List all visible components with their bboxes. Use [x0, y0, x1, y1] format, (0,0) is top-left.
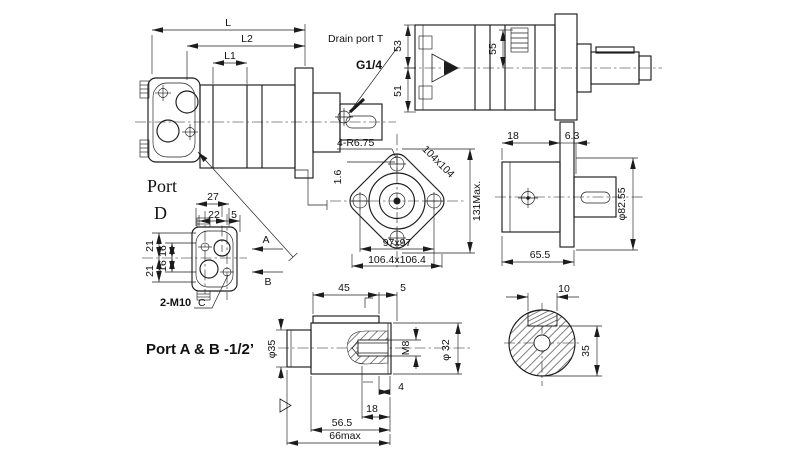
dim-L1: L1 [224, 50, 236, 62]
surface-finish-symbol [280, 399, 291, 412]
hydraulic-motor-drawing: L L2 L1 Drain port T G1/4 [0, 0, 800, 450]
port-top-dimensions: 27 22 5 [196, 191, 240, 232]
bolt-note-text: 2-M10 [160, 297, 191, 309]
bolt-note: 2-M10 C [160, 275, 228, 309]
dim-21-lower: 21 [144, 265, 156, 277]
dim-10: 10 [558, 283, 570, 295]
dim-L: L [225, 17, 231, 29]
port-stub-marks [197, 218, 210, 300]
dim-dia-82-55: φ82.55 [616, 187, 628, 220]
dim-53: 53 [392, 40, 404, 52]
shaft-key-section: 10 35 [504, 283, 602, 386]
flange-front-view: 4-R6.75 1.6 104x104 131Max. 97x97 106.4x… [330, 134, 483, 268]
dim-6-3: 6.3 [565, 130, 580, 142]
dim-65-5: 65.5 [530, 249, 551, 261]
dim-16-lower: 16 [157, 260, 169, 272]
dim-dia35: φ35 [266, 340, 278, 359]
flow-arrows: A B [252, 234, 283, 288]
dim-66max: 66max [329, 430, 361, 442]
thread-section [347, 331, 388, 364]
flow-a-label: A [262, 234, 269, 246]
square-inner-dim: 97x97 [383, 237, 412, 249]
dim-5: 5 [231, 209, 237, 221]
m10-holes [198, 243, 234, 276]
dim-27: 27 [207, 191, 219, 203]
dim-m8: M8 [400, 341, 412, 356]
corner-radius-note: 4-R6.75 [337, 137, 375, 149]
port-title-word: Port [147, 176, 177, 196]
drain-thread-label: G1/4 [356, 58, 382, 72]
drain-port-label: Drain port T [328, 33, 384, 45]
dim-21-upper: 21 [144, 240, 156, 252]
bolt-note-ref: C [198, 297, 206, 309]
dim-4: 4 [398, 381, 404, 393]
port-size-note: Port A & B -1/2’ [146, 341, 254, 358]
output-shaft-detail: 45 5 φ35 M8 φ 32 4 18 [266, 282, 470, 445]
port-d-view: Port D 27 22 5 [142, 176, 283, 309]
end-bolt-mark [518, 188, 538, 208]
flange-dimensions: 4-R6.75 1.6 104x104 131Max. 97x97 106.4x… [332, 137, 483, 268]
dim-18: 18 [507, 130, 519, 142]
drain-plug [511, 28, 528, 52]
length-dimensions: L L2 L1 [152, 17, 305, 84]
roughness-value: 1.6 [332, 170, 344, 185]
dim-dia32: φ 32 [440, 339, 452, 361]
dim-55: 55 [487, 43, 499, 55]
motor-top-view: 53 51 55 [392, 14, 662, 120]
dim-51: 51 [392, 85, 404, 97]
port-title-letter: D [154, 203, 167, 223]
port-left-dimensions: 21 21 16 16 [144, 233, 196, 282]
dim-16-upper: 16 [157, 245, 169, 257]
square-outer-dim: 106.4x106.4 [368, 254, 426, 266]
shaft-end-view: 18 6.3 φ82.55 65.5 [495, 122, 645, 266]
dim-35: 35 [580, 345, 592, 357]
dim-45: 45 [338, 282, 350, 294]
max-dim: 131Max. [471, 181, 483, 221]
dim-22: 22 [208, 209, 220, 221]
dim-L2: L2 [241, 33, 253, 45]
flow-b-label: B [264, 276, 271, 288]
dim-56-5: 56.5 [332, 417, 353, 429]
dim-5: 5 [400, 282, 406, 294]
dim-18: 18 [366, 403, 378, 415]
valve-detail [419, 25, 458, 110]
engineering-drawing-page: L L2 L1 Drain port T G1/4 [0, 0, 800, 450]
